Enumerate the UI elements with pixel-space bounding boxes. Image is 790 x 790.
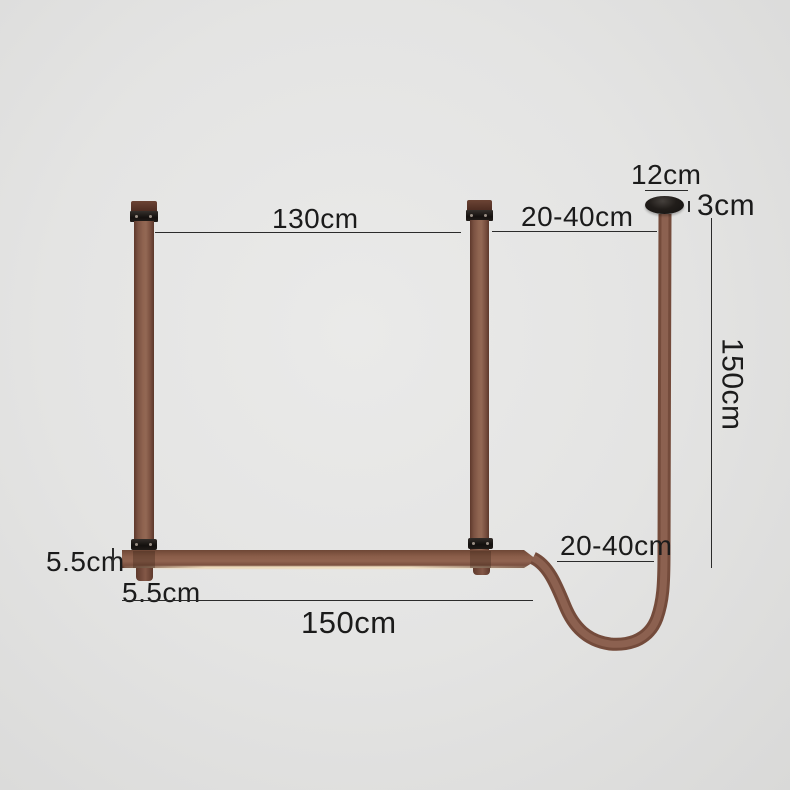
dim-tick-bar-thickness: [112, 548, 114, 570]
dim-label-bar-length: 150cm: [301, 607, 397, 640]
dim-label-drop-length: 150cm: [716, 338, 748, 431]
dim-label-strap-width: 5.5cm: [122, 578, 201, 607]
dim-line-bar-length: [122, 600, 533, 601]
dim-line-side-offset: [557, 561, 654, 562]
dim-line-top-span: [155, 232, 461, 233]
dim-line-top-offset: [492, 231, 657, 232]
dim-line-canopy-diameter: [645, 190, 688, 191]
ceiling-canopy: [645, 196, 684, 214]
dim-label-top-span: 130cm: [272, 204, 359, 233]
dim-tick-canopy-thickness: [688, 201, 690, 212]
dim-label-side-offset: 20-40cm: [560, 531, 672, 560]
hanging-strap: [0, 0, 790, 790]
dim-label-top-offset: 20-40cm: [521, 202, 633, 231]
product-dimension-diagram: 130cm 20-40cm 12cm 3cm 150cm 20-40cm 5.5…: [0, 0, 790, 790]
dim-label-canopy-thickness: 3cm: [697, 190, 755, 222]
dim-label-canopy-diameter: 12cm: [631, 160, 701, 189]
dim-line-drop-length: [711, 218, 712, 568]
